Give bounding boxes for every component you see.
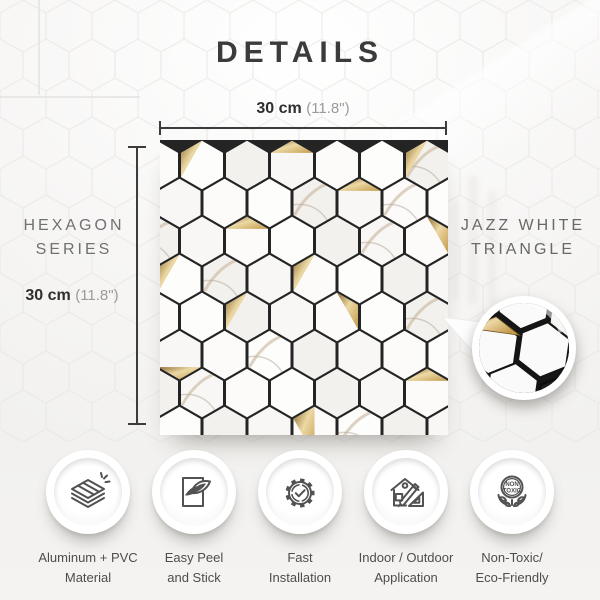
feature-circle	[46, 450, 130, 534]
feature-label-line2: Material	[35, 568, 141, 588]
feature-material: Aluminum + PVC Material	[35, 450, 141, 587]
non-toxic-text-line2: TOXIC	[503, 489, 522, 495]
dimension-top-value: 30 cm	[256, 100, 301, 117]
material-layers-icon	[64, 468, 112, 516]
feature-label-line1: Easy Peel	[141, 548, 247, 568]
features-row: Aluminum + PVC Material Easy Peel and St…	[0, 450, 600, 587]
feature-label-line2: and Stick	[141, 568, 247, 588]
product-label: JAZZ WHITE TRIANGLE	[450, 214, 596, 262]
feature-label-line2: Eco-Friendly	[459, 568, 565, 588]
gear-check-icon	[276, 468, 324, 516]
tile-svg	[160, 140, 448, 435]
dimension-top-line	[159, 127, 447, 129]
page-title: DETAILS	[0, 36, 600, 70]
peel-stick-icon	[170, 468, 218, 516]
feature-label-line1: Aluminum + PVC	[35, 548, 141, 568]
series-label: HEXAGON SERIES	[4, 214, 144, 262]
feature-circle	[364, 450, 448, 534]
feature-circle	[258, 450, 342, 534]
non-toxic-text-line1: NON	[505, 482, 518, 488]
feature-non-toxic: NON TOXIC Non-Toxic/ Eco-Friendly	[459, 450, 565, 587]
non-toxic-badge-icon: NON TOXIC	[488, 468, 536, 516]
background-cabinet-line	[0, 96, 140, 98]
feature-peel-stick: Easy Peel and Stick	[141, 450, 247, 587]
dimension-top-label: 30 cm (11.8")	[158, 100, 448, 118]
dimension-top-alt: (11.8")	[306, 100, 349, 117]
feature-label-line2: Application	[353, 568, 459, 588]
dimension-left-line	[136, 146, 138, 425]
feature-label-line2: Installation	[247, 568, 353, 588]
zoom-inset	[436, 284, 600, 430]
dimension-left-alt: (11.8")	[75, 287, 118, 304]
feature-label-line1: Non-Toxic/	[459, 548, 565, 568]
house-tools-icon	[382, 468, 430, 516]
feature-label-line1: Indoor / Outdoor	[353, 548, 459, 568]
feature-fast-installation: Fast Installation	[247, 450, 353, 587]
product-label-line1: JAZZ WHITE	[450, 214, 596, 238]
feature-label-line1: Fast	[247, 548, 353, 568]
dimension-left-value: 30 cm	[25, 287, 70, 304]
feature-circle	[152, 450, 236, 534]
feature-circle: NON TOXIC	[470, 450, 554, 534]
inset-svg	[436, 284, 600, 430]
feature-application: Indoor / Outdoor Application	[353, 450, 459, 587]
series-label-line2: SERIES	[4, 238, 144, 262]
product-label-line2: TRIANGLE	[450, 238, 596, 262]
series-label-line1: HEXAGON	[4, 214, 144, 238]
mosaic-tile-sheet	[160, 140, 448, 435]
dimension-left-label: 30 cm (11.8")	[14, 287, 130, 305]
